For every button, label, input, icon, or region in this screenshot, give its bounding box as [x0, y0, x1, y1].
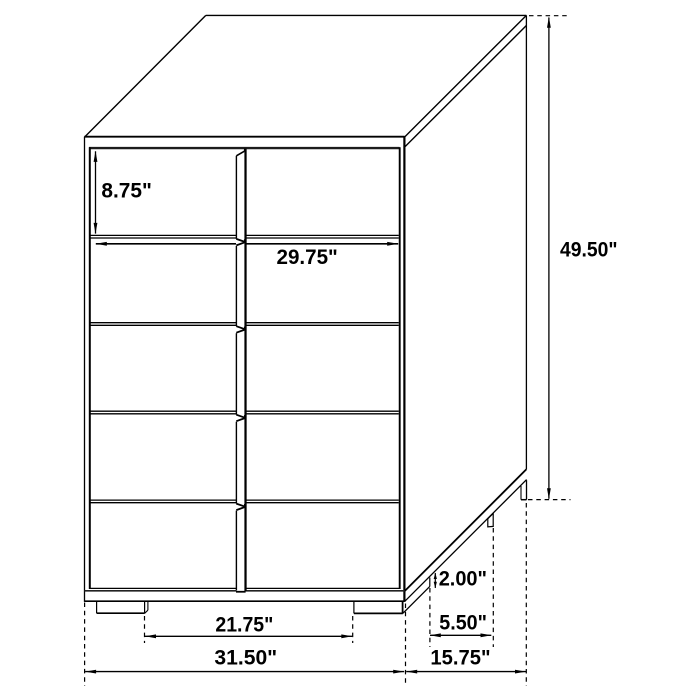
svg-text:15.75": 15.75": [430, 646, 490, 669]
svg-text:2.00": 2.00": [439, 567, 487, 590]
svg-text:49.50": 49.50": [560, 239, 618, 262]
svg-text:5.50": 5.50": [439, 611, 487, 634]
svg-text:21.75": 21.75": [215, 613, 273, 636]
svg-text:29.75": 29.75": [277, 246, 338, 269]
svg-text:31.50": 31.50": [214, 646, 277, 669]
svg-text:8.75": 8.75": [101, 180, 151, 203]
